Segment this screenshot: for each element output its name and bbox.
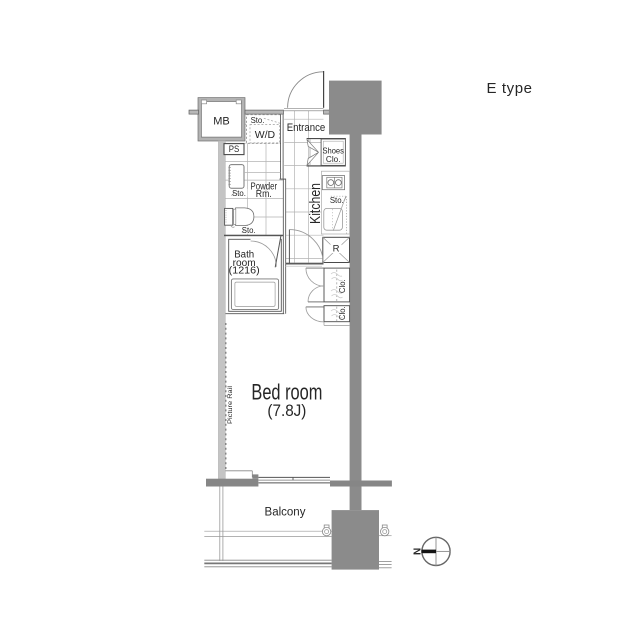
svg-text:E type: E type [487, 80, 533, 97]
svg-text:Balcony: Balcony [265, 506, 306, 518]
svg-text:Clo.: Clo. [338, 306, 347, 320]
svg-text:Sto.: Sto. [242, 226, 256, 235]
svg-text:MB: MB [213, 116, 230, 128]
svg-text:N: N [412, 548, 423, 555]
svg-text:Sto.: Sto. [251, 116, 265, 125]
svg-text:Picture Rail: Picture Rail [227, 386, 234, 424]
svg-text:(1216): (1216) [229, 265, 260, 276]
svg-text:Sto.: Sto. [330, 196, 344, 205]
svg-text:Clo.: Clo. [338, 279, 347, 293]
svg-text:(7.8J): (7.8J) [267, 401, 306, 420]
svg-text:W/D: W/D [255, 129, 276, 141]
svg-text:Entrance: Entrance [287, 122, 326, 134]
svg-text:R: R [333, 243, 340, 254]
svg-text:Clo.: Clo. [326, 155, 341, 164]
svg-text:PS: PS [229, 144, 240, 154]
svg-text:Sto.: Sto. [232, 189, 246, 198]
svg-text:Rm.: Rm. [256, 189, 272, 200]
